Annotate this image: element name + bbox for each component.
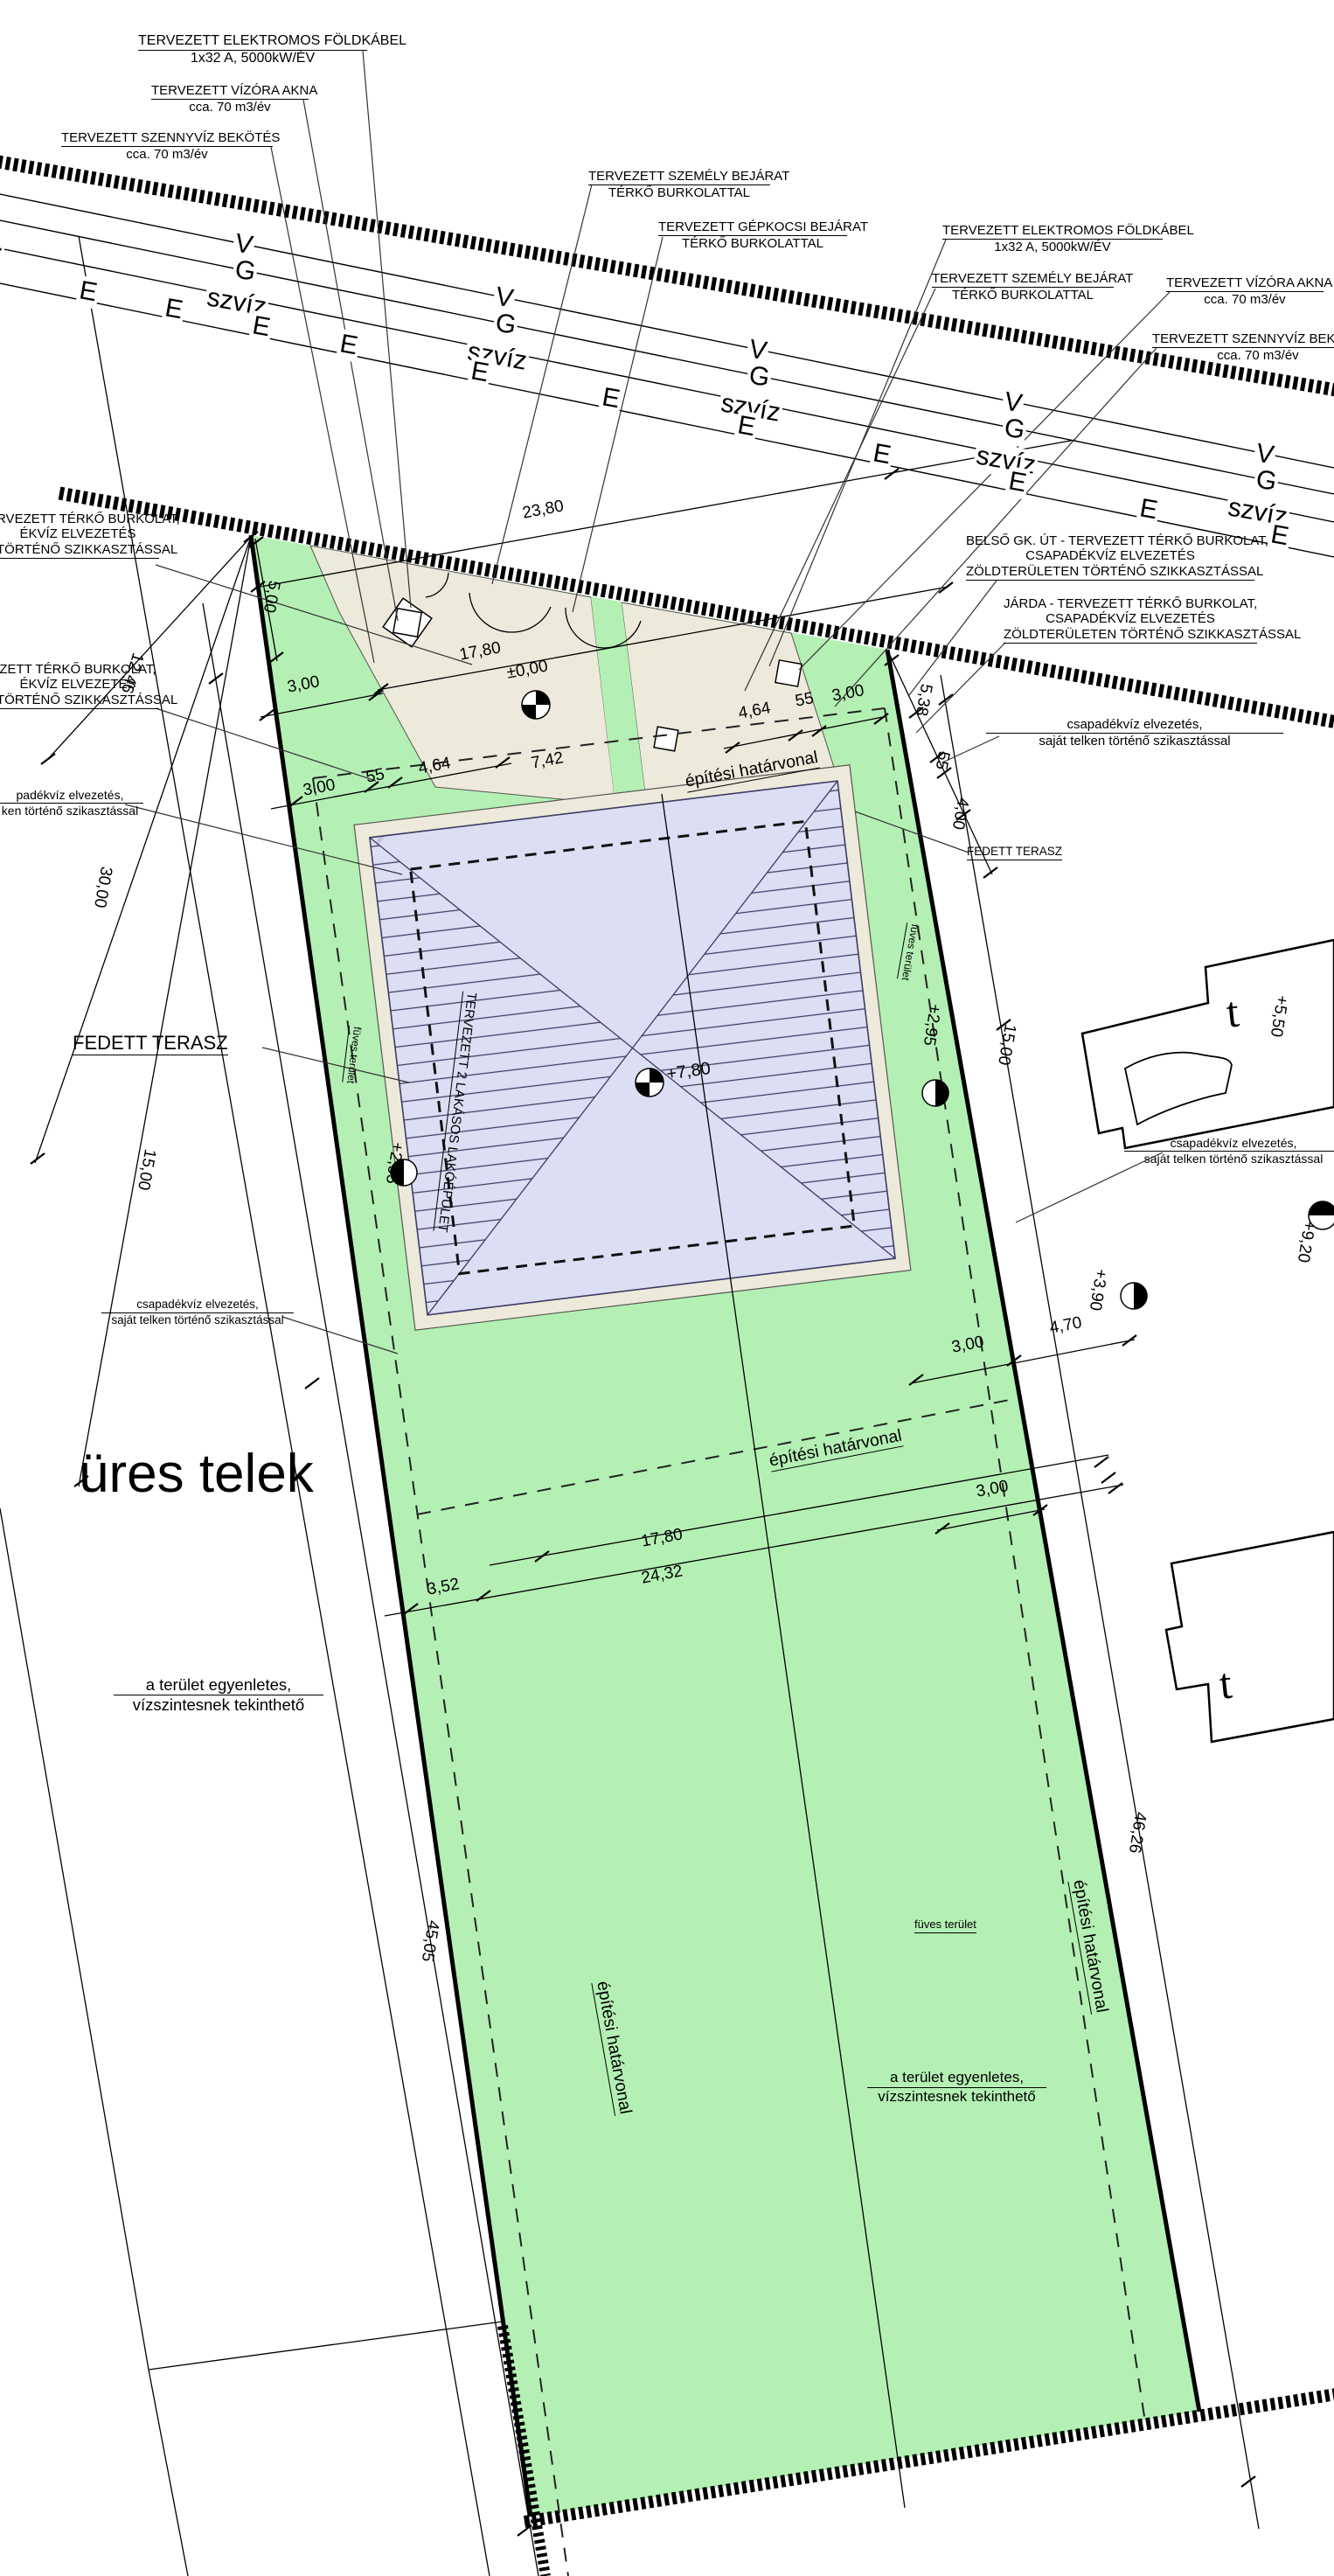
callout-szennyviz-left: TERVEZETT SZENNYVÍZ BEKÖTÉS cca. 70 m3/é… [61, 130, 273, 163]
callout-left-burkolat-1: RVEZETT TÉRKŐ BURKOLAT, ÉKVÍZ ELVEZETÉS … [0, 512, 159, 559]
callout-csapadek-left-low: csapadékvíz elvezetés, saját telken tört… [101, 1298, 294, 1326]
label-fedett-terasz-right: FEDETT TERASZ [967, 845, 1062, 860]
plan-geometry [0, 0, 1334, 2576]
callout-szemely-right: TERVEZETT SZEMÉLY BEJÁRAT TÉRKŐ BURKOLAT… [932, 271, 1114, 303]
dim-55-chainright: 55 [794, 689, 816, 711]
label-fuves-bottom: füves terület [914, 1918, 976, 1933]
callout-vizora-right: TERVEZETT VÍZÓRA AKNA cca. 70 m3/év [1166, 275, 1324, 308]
callout-gepkocsi: TERVEZETT GÉPKOCSI BEJÁRAT TÉRKŐ BURKOLA… [658, 219, 847, 252]
label-fedett-terasz-left: FEDETT TERASZ [73, 1032, 228, 1055]
callout-szemely-mid: TERVEZETT SZEMÉLY BEJÁRAT TÉRKŐ BURKOLAT… [588, 169, 770, 201]
label-terrain-bottom: a terület egyenletes, vízszintesnek teki… [867, 2069, 1046, 2105]
dim-55-right: 55 [931, 749, 953, 771]
neighbour-buildings [1082, 940, 1334, 1742]
building-group [354, 765, 911, 1330]
akna-symbol-2 [775, 660, 802, 686]
callout-jarda: JÁRDA - TERVEZETT TÉRKŐ BURKOLAT, CSAPAD… [1004, 596, 1257, 644]
label-terrain-left: a terület egyenletes, vízszintesnek teki… [114, 1675, 323, 1715]
akna-symbol-3 [654, 727, 678, 751]
dim-55-chainleft: 55 [365, 765, 386, 787]
callout-elektromos-left: TERVEZETT ELEKTROMOS FÖLDKÁBEL 1x32 A, 5… [138, 33, 367, 67]
callout-elektromos-right: TERVEZETT ELEKTROMOS FÖLDKÁBEL 1x32 A, 5… [942, 223, 1163, 255]
label-ures-telek: üres telek [79, 1443, 314, 1505]
callout-belso-ut: BELSŐ GK. ÚT - TERVEZETT TÉRKŐ BURKOLAT,… [966, 533, 1254, 581]
callout-szennyviz-right: TERVEZETT SZENNYVÍZ BEKÖTÉS cca. 70 m3/é… [1152, 331, 1334, 364]
site-plan: TERVEZETT ELEKTROMOS FÖLDKÁBEL 1x32 A, 5… [0, 0, 1334, 2576]
callout-csapadek-right-top: csapadékvíz elvezetés, saját telken tört… [986, 717, 1283, 749]
callout-vizora-left: TERVEZETT VÍZÓRA AKNA cca. 70 m3/év [151, 83, 309, 115]
callout-csapadek-left-top: padékvíz elvezetés, ken történő szikaszt… [0, 788, 143, 818]
callout-csapadek-right-mid: csapadékvíz elvezetés, saját telken tört… [1124, 1136, 1334, 1166]
